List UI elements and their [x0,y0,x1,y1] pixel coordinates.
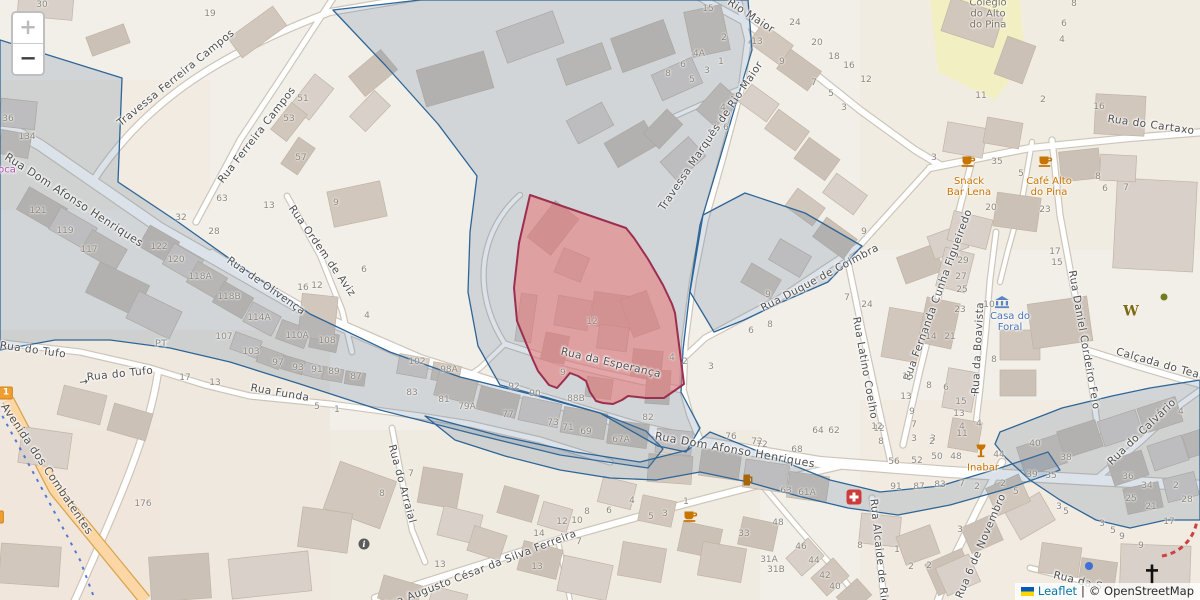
map-canvas[interactable]: Travessa Ferreira CamposRua Ferreira Cam… [0,0,1200,600]
leaflet-link[interactable]: Leaflet [1038,584,1077,598]
attribution-bar: Leaflet | © OpenStreetMap [1015,583,1200,600]
boundary-polygon[interactable] [995,380,1200,528]
zoom-control: + − [11,11,45,76]
zoom-in-button[interactable]: + [13,13,43,44]
vector-overlays [0,0,1200,600]
osm-attribution[interactable]: © OpenStreetMap [1089,584,1194,598]
zoom-out-button[interactable]: − [13,44,43,74]
ukraine-flag-icon [1021,587,1034,596]
attribution-separator: | [1081,584,1085,598]
boundary-polygon[interactable] [690,193,862,332]
